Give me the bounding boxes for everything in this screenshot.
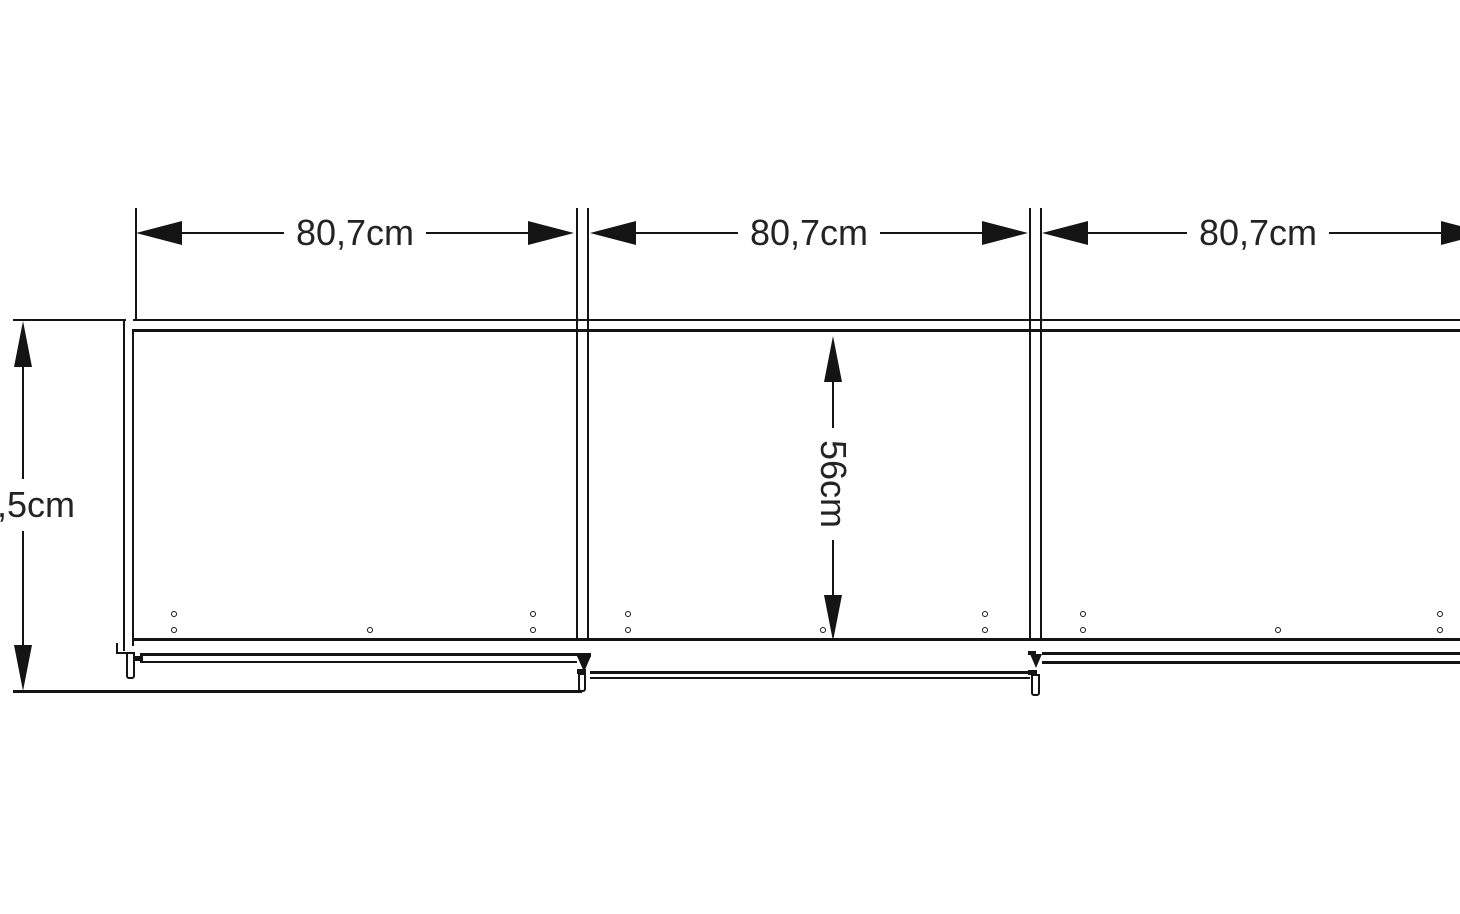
drill-hole	[982, 611, 988, 617]
depth-dim-arrow-up	[14, 321, 32, 367]
left-door-inner-line	[140, 661, 577, 663]
left-side-panel-outer	[123, 319, 125, 651]
width-dim-1-arrow-right	[528, 221, 574, 245]
middle-door-inner-line	[590, 677, 1030, 679]
width-dim-1-label: 80,7cm	[284, 207, 426, 259]
partition-2-left-line	[1029, 208, 1031, 640]
left-door-front-line	[13, 690, 582, 693]
inner-depth-label: 56cm	[807, 428, 859, 540]
depth-dim-label: ,5cm	[0, 479, 85, 531]
width-dim-3-label: 80,7cm	[1187, 207, 1329, 259]
inner-depth-arrow-up	[824, 336, 842, 382]
left-side-panel-inner	[132, 329, 134, 646]
partition-1-left-line	[576, 208, 578, 640]
middle-door-left-end-profile	[578, 673, 586, 692]
middle-door-back-line	[590, 671, 1030, 674]
drill-hole	[367, 627, 373, 633]
partition-2-right-line	[1040, 208, 1042, 640]
drill-hole	[1275, 627, 1281, 633]
left-door-back-line	[140, 653, 577, 656]
drill-hole	[820, 627, 826, 633]
wardrobe-top-view-diagram: 80,7cm 80,7cm 80,7cm ,5cm 56cm	[0, 0, 1460, 914]
middle-door-right-end-profile	[1031, 674, 1040, 696]
drill-hole	[982, 627, 988, 633]
width-dim-1-arrow-left	[136, 221, 182, 245]
drill-hole	[171, 611, 177, 617]
width-dim-2-arrow-right	[982, 221, 1028, 245]
left-door-left-end-nub	[135, 656, 143, 661]
drill-hole	[530, 611, 536, 617]
drill-hole	[171, 627, 177, 633]
right-door-left-end-profile	[1030, 654, 1042, 668]
drill-hole	[1437, 611, 1443, 617]
left-door-left-end-profile	[126, 652, 135, 679]
drill-hole	[625, 611, 631, 617]
drill-hole	[530, 627, 536, 633]
drill-hole	[1080, 627, 1086, 633]
partition-1-right-line	[587, 208, 589, 640]
width-dim-3-arrow-right	[1441, 221, 1460, 245]
cabinet-front-line	[133, 638, 1460, 641]
drill-hole	[1080, 611, 1086, 617]
right-door-back-line	[1042, 652, 1460, 655]
left-side-panel-foot-horizontal	[116, 652, 126, 654]
cabinet-back-line-outer	[133, 319, 1460, 321]
cabinet-back-line-inner	[133, 329, 1460, 332]
depth-dim-arrow-down	[14, 645, 32, 691]
width-dim-2-label: 80,7cm	[738, 207, 880, 259]
drill-hole	[1437, 627, 1443, 633]
width-dim-3-arrow-left	[1042, 221, 1088, 245]
inner-depth-arrow-down	[824, 595, 842, 641]
width-dim-2-arrow-left	[590, 221, 636, 245]
right-door-inner-line	[1042, 661, 1460, 664]
drill-hole	[625, 627, 631, 633]
